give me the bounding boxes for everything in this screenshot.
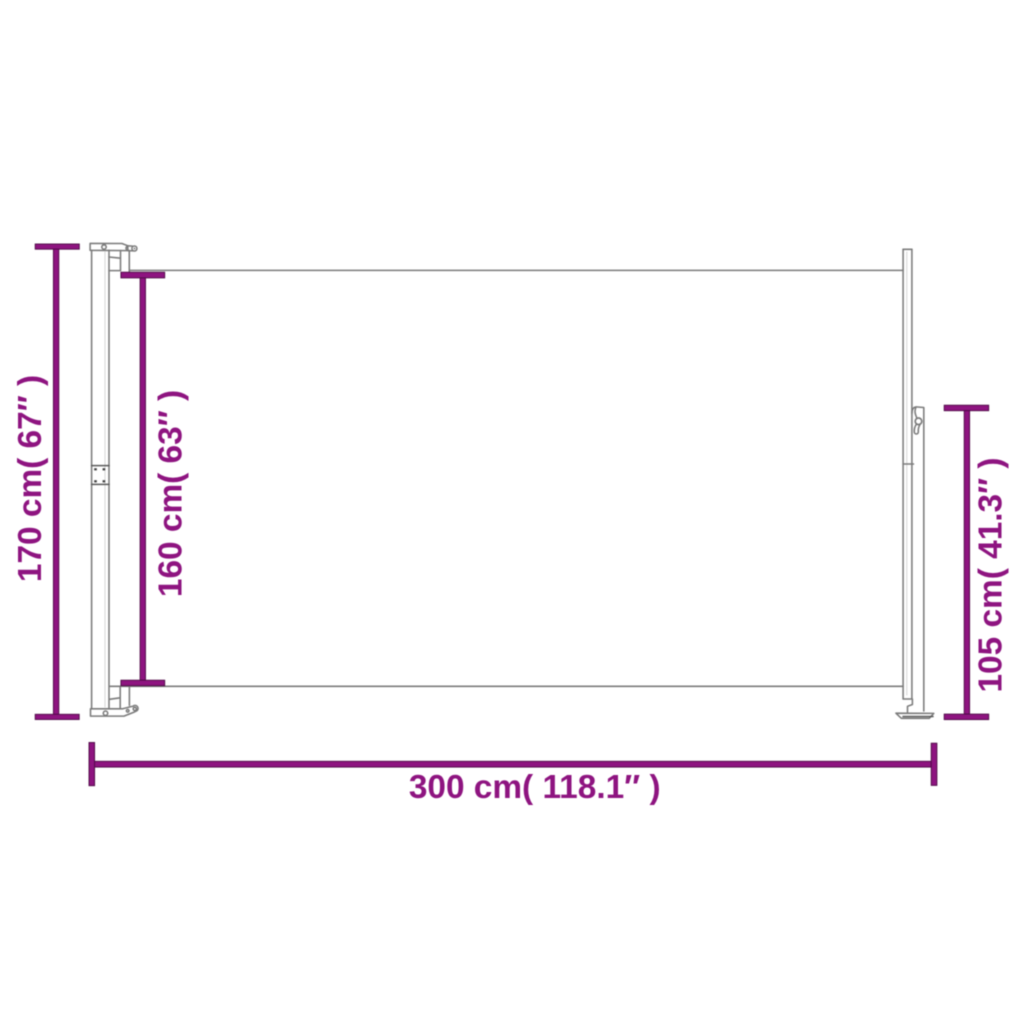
svg-text:105 cm( 41.3″ ): 105 cm( 41.3″ ) — [973, 457, 1010, 692]
svg-text:170 cm( 67″ ): 170 cm( 67″ ) — [12, 375, 49, 582]
svg-text:300 cm( 118.1″ ): 300 cm( 118.1″ ) — [409, 769, 661, 806]
svg-text:160 cm( 63″ ): 160 cm( 63″ ) — [152, 390, 189, 597]
